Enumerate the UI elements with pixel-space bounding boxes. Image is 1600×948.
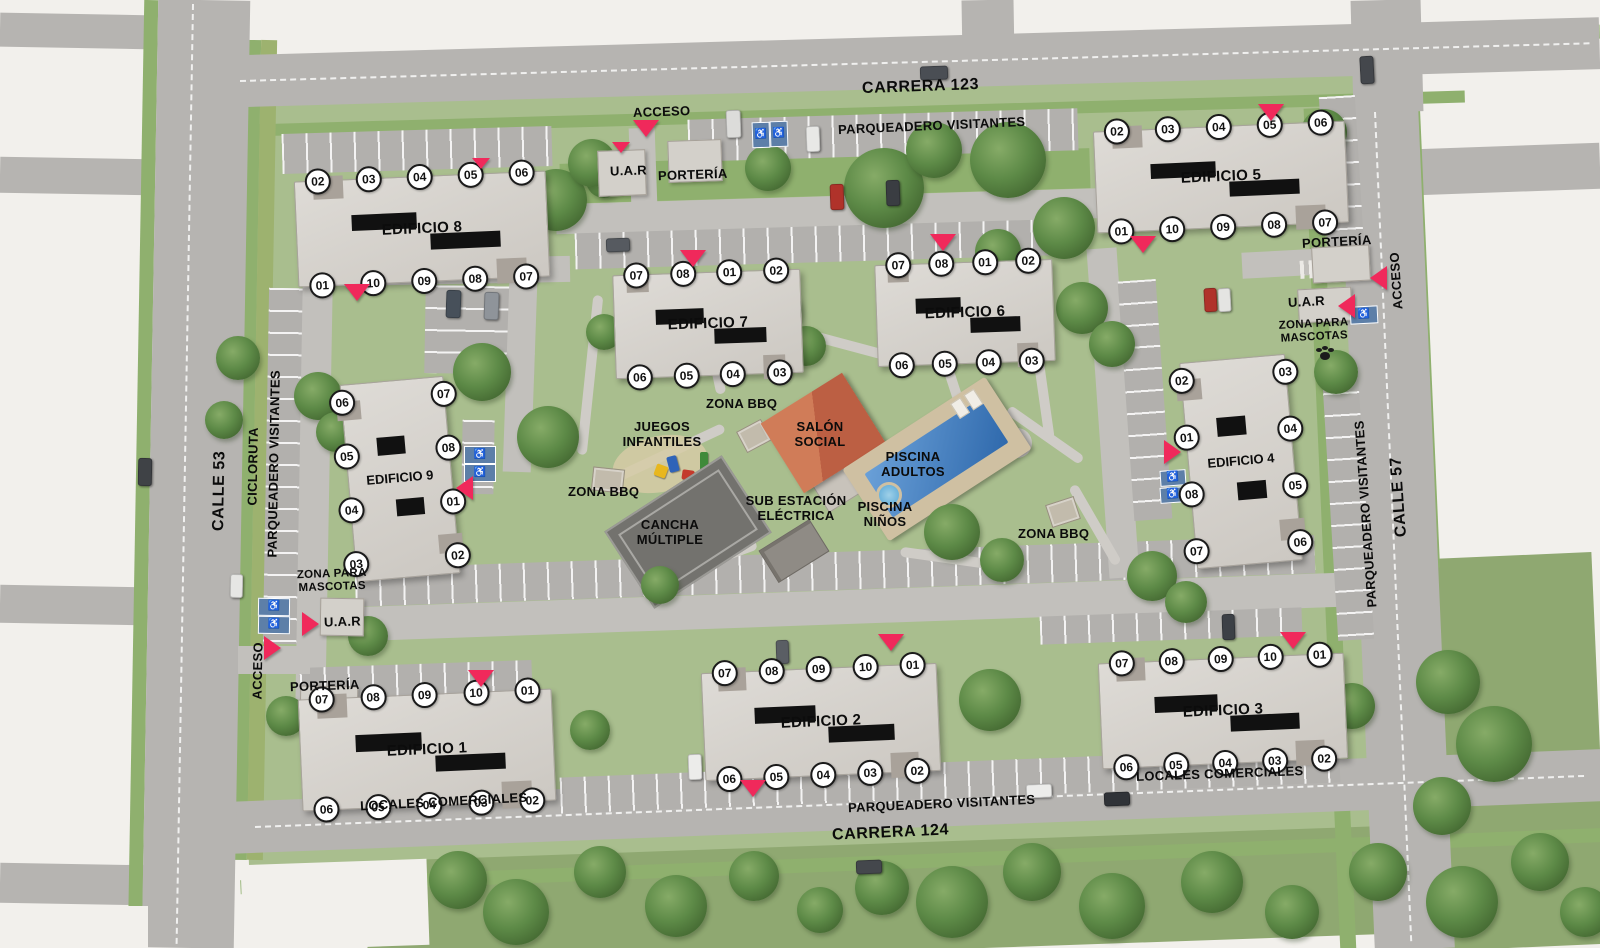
unit-badge[interactable]: 06	[328, 389, 356, 417]
porteria-hut-right	[1311, 245, 1371, 284]
unit-badge[interactable]: 08	[1261, 211, 1288, 238]
unit-badge[interactable]: 06	[888, 352, 915, 379]
side-street	[0, 585, 142, 625]
car	[484, 292, 500, 321]
label-uar-right: U.A.R	[1288, 293, 1326, 310]
tree	[205, 401, 243, 439]
building-name: EDIFICIO 8	[297, 215, 548, 243]
unit-badge[interactable]: 08	[1158, 648, 1185, 675]
unit-badge[interactable]: 05	[932, 350, 959, 377]
map-marker[interactable]	[680, 250, 706, 267]
unit-badge[interactable]: 06	[626, 364, 653, 391]
tree	[916, 866, 988, 938]
building-edificio-7[interactable]: EDIFICIO 7 07 08 01 02 06 05 04 03	[612, 269, 804, 379]
tree	[1181, 851, 1243, 913]
tree	[959, 669, 1021, 731]
building-edificio-5[interactable]: EDIFICIO 5 02 03 04 05 06 01 10 09 08 07	[1093, 121, 1349, 234]
unit-badge[interactable]: 01	[309, 272, 336, 299]
label-porteria-top: PORTERÍA	[658, 166, 728, 183]
unit-badge[interactable]: 04	[337, 496, 365, 524]
tree	[570, 710, 610, 750]
label-piscina-adultos: PISCINA ADULTOS	[868, 450, 958, 480]
unit-badge[interactable]: 05	[673, 362, 700, 389]
map-marker[interactable]	[1130, 236, 1156, 253]
car	[688, 754, 703, 780]
unit-badge[interactable]: 08	[1178, 480, 1206, 508]
car	[446, 290, 462, 319]
unit-badge[interactable]: 05	[1281, 471, 1309, 499]
unit-badge[interactable]: 03	[1018, 347, 1045, 374]
map-marker[interactable]	[302, 612, 319, 636]
map-marker[interactable]	[468, 670, 494, 687]
building-name: EDIFICIO 7	[615, 312, 801, 335]
unit-badges-top: 07 08 01 02	[885, 247, 1042, 278]
unit-badge[interactable]: 03	[857, 759, 884, 786]
tree	[1003, 843, 1061, 901]
building-edificio-2[interactable]: EDIFICIO 2 07 08 09 10 01 06 05 04 03 02	[701, 663, 941, 781]
tree	[483, 879, 549, 945]
tree	[1079, 873, 1145, 939]
unit-badge[interactable]: 05	[333, 442, 361, 470]
unit-badge[interactable]: 09	[805, 655, 832, 682]
label-salon-social: SALÓN SOCIAL	[780, 420, 860, 450]
building-edificio-8[interactable]: EDIFICIO 8 02 03 04 05 06 01 10 09 08 07	[294, 171, 550, 288]
map-marker[interactable]	[344, 284, 370, 301]
unit-badge[interactable]: 02	[763, 257, 790, 284]
car	[1203, 288, 1217, 313]
map-marker[interactable]	[456, 476, 473, 500]
handicap-parking-icon: ♿	[258, 616, 290, 635]
tree	[1165, 581, 1207, 623]
unit-badge[interactable]: 06	[313, 796, 340, 823]
map-marker[interactable]	[930, 234, 956, 251]
tree	[1413, 777, 1471, 835]
roof-vent	[1237, 480, 1268, 501]
label-zona-mascotas-left: ZONA PARA MASCOTAS	[290, 567, 375, 596]
building-name: EDIFICIO 6	[877, 301, 1053, 324]
unit-badge[interactable]: 06	[508, 159, 535, 186]
handicap-parking-icon: ♿	[464, 446, 496, 464]
label-acceso-top: ACCESO	[633, 103, 691, 120]
car	[830, 184, 845, 210]
unit-badge[interactable]: 06	[1307, 109, 1334, 136]
building-name: EDIFICIO 9	[348, 466, 451, 490]
tree	[429, 851, 487, 909]
side-street	[1415, 143, 1600, 195]
map-marker[interactable]	[1370, 266, 1387, 290]
unit-badge[interactable]: 08	[928, 250, 955, 277]
unit-badge[interactable]: 04	[1205, 113, 1232, 140]
unit-badge[interactable]: 07	[1183, 537, 1211, 565]
tree	[1265, 885, 1319, 939]
car	[806, 126, 821, 152]
site-plan-map: ♿ ♿ ♿ ♿ ♿ ♿ ♿ ♿ ♿ EDIFICIO 8 02 03 04 05…	[0, 0, 1600, 948]
street-label-cicloruta: CICLORUTA	[245, 427, 261, 506]
unit-badge[interactable]: 09	[1210, 213, 1237, 240]
map-marker[interactable]	[472, 158, 490, 169]
label-sub-estacion: SUB ESTACIÓN ELÉCTRICA	[736, 494, 856, 524]
tree	[924, 504, 980, 560]
unit-badge[interactable]: 01	[899, 651, 926, 678]
map-marker[interactable]	[1338, 294, 1355, 318]
unit-badge[interactable]: 07	[711, 660, 738, 687]
tree	[970, 122, 1046, 198]
unit-badge[interactable]: 08	[462, 265, 489, 292]
unit-badge[interactable]: 02	[1015, 247, 1042, 274]
map-marker[interactable]	[878, 634, 904, 651]
unit-badge[interactable]: 03	[355, 166, 382, 193]
unit-badge[interactable]: 09	[411, 267, 438, 294]
map-marker[interactable]	[1164, 440, 1181, 464]
unit-badge[interactable]: 10	[852, 653, 879, 680]
unit-badge[interactable]: 07	[623, 262, 650, 289]
map-marker[interactable]	[1258, 104, 1284, 121]
unit-badge[interactable]: 01	[716, 259, 743, 286]
unit-badge[interactable]: 03	[766, 359, 793, 386]
label-acceso-left: ACCESO	[250, 642, 266, 700]
car	[1359, 56, 1374, 85]
unit-badge[interactable]: 02	[304, 168, 331, 195]
unit-badge[interactable]: 01	[971, 249, 998, 276]
unit-badge[interactable]: 04	[1276, 414, 1304, 442]
car	[856, 860, 882, 875]
car	[606, 238, 630, 253]
tree	[1511, 833, 1569, 891]
unit-badge[interactable]: 08	[360, 684, 387, 711]
handicap-parking-icon: ♿	[752, 122, 771, 149]
unit-badges-bottom: 06 05 04 03	[888, 347, 1045, 378]
unit-badge[interactable]: 02	[904, 757, 931, 784]
unit-badge[interactable]: 07	[430, 380, 458, 408]
unit-badge[interactable]: 02	[1311, 745, 1338, 772]
unit-badge[interactable]: 03	[1154, 116, 1181, 143]
unit-badge[interactable]: 02	[1103, 118, 1130, 145]
unit-badge[interactable]: 08	[758, 658, 785, 685]
tree	[1416, 650, 1480, 714]
side-street	[0, 157, 150, 196]
map-marker[interactable]	[264, 636, 281, 660]
tree	[645, 875, 707, 937]
street-label-calle-53: CALLE 53	[210, 450, 229, 531]
tree	[1426, 866, 1498, 938]
map-marker[interactable]	[633, 120, 659, 137]
unit-badge[interactable]: 06	[716, 765, 743, 792]
building-edificio-9[interactable]: EDIFICIO 9 06 05 04 03 07 08 01 02	[340, 376, 461, 582]
side-street	[0, 863, 148, 906]
unit-badge[interactable]: 09	[1207, 645, 1234, 672]
label-cancha-multiple: CANCHA MÚLTIPLE	[620, 518, 720, 548]
building-edificio-6[interactable]: EDIFICIO 6 07 08 01 02 06 05 04 03	[874, 259, 1055, 367]
car	[1217, 288, 1231, 313]
car	[1104, 792, 1130, 807]
car	[726, 110, 742, 139]
tree	[641, 566, 679, 604]
tree	[745, 145, 791, 191]
building-edificio-4[interactable]: EDIFICIO 4 02 01 08 07 03 04 05 06	[1179, 354, 1303, 569]
unit-badge[interactable]: 02	[1168, 367, 1196, 395]
tree	[453, 343, 511, 401]
unit-badge[interactable]: 09	[411, 681, 438, 708]
map-marker[interactable]	[740, 780, 766, 797]
map-marker[interactable]	[1280, 632, 1306, 649]
map-marker[interactable]	[612, 142, 630, 153]
label-zona-bbq-top: ZONA BBQ	[706, 396, 777, 411]
tree	[517, 406, 579, 468]
city-block	[241, 859, 430, 948]
unit-badge[interactable]: 04	[810, 761, 837, 788]
label-zona-bbq-right: ZONA BBQ	[1018, 526, 1089, 541]
tree	[574, 846, 626, 898]
handicap-parking-icon: ♿	[258, 598, 290, 617]
unit-badge[interactable]: 01	[1306, 641, 1333, 668]
unit-badge[interactable]: 08	[434, 434, 462, 462]
label-porteria-left: PORTERÍA	[290, 677, 360, 694]
unit-badge[interactable]: 05	[763, 763, 790, 790]
side-street	[0, 13, 152, 50]
unit-badge[interactable]: 06	[1286, 528, 1314, 556]
car	[138, 458, 152, 486]
building-name: EDIFICIO 4	[1188, 448, 1293, 472]
label-uar-top: U.A.R	[610, 162, 647, 178]
label-juegos-infantiles: JUEGOS INFANTILES	[612, 420, 712, 450]
car	[886, 180, 901, 206]
unit-badge[interactable]: 07	[885, 252, 912, 279]
building-name: EDIFICIO 3	[1101, 697, 1346, 725]
car	[230, 574, 243, 598]
tree	[797, 887, 843, 933]
unit-badge[interactable]: 10	[1159, 216, 1186, 243]
tree	[1456, 706, 1532, 782]
unit-badge[interactable]: 07	[513, 263, 540, 290]
unit-badge[interactable]: 07	[1108, 650, 1135, 677]
label-uar-left: U.A.R	[324, 613, 361, 629]
roof-vent	[396, 497, 426, 517]
unit-badge[interactable]: 07	[1312, 209, 1339, 236]
tree	[1089, 321, 1135, 367]
building-name: EDIFICIO 1	[301, 736, 554, 764]
paw-icon	[1320, 352, 1330, 360]
tree	[1349, 843, 1407, 901]
unit-badge[interactable]: 03	[1271, 358, 1299, 386]
tree	[729, 851, 779, 901]
tree	[1033, 197, 1095, 259]
building-edificio-3[interactable]: EDIFICIO 3 07 08 09 10 01 06 05 04 03 02	[1098, 653, 1348, 770]
roof-vent	[1216, 416, 1247, 437]
unit-badge[interactable]: 04	[720, 361, 747, 388]
tree	[980, 538, 1024, 582]
building-name: EDIFICIO 2	[704, 708, 939, 735]
road-calle-53	[142, 0, 251, 948]
unit-badge[interactable]: 04	[975, 349, 1002, 376]
unit-badge[interactable]: 04	[406, 163, 433, 190]
building-name: EDIFICIO 5	[1096, 163, 1347, 191]
label-zona-bbq-left: ZONA BBQ	[568, 484, 639, 499]
roof-vent	[376, 435, 406, 455]
tree	[216, 336, 260, 380]
unit-badge[interactable]: 02	[444, 541, 472, 569]
city-block	[0, 906, 148, 948]
unit-badges-top: 07 08 01 02	[623, 257, 790, 289]
unit-badge[interactable]: 01	[514, 677, 541, 704]
handicap-parking-icon: ♿	[770, 121, 789, 148]
label-zona-mascotas-right: ZONA PARA MASCOTAS	[1271, 316, 1356, 347]
car	[1222, 614, 1236, 640]
